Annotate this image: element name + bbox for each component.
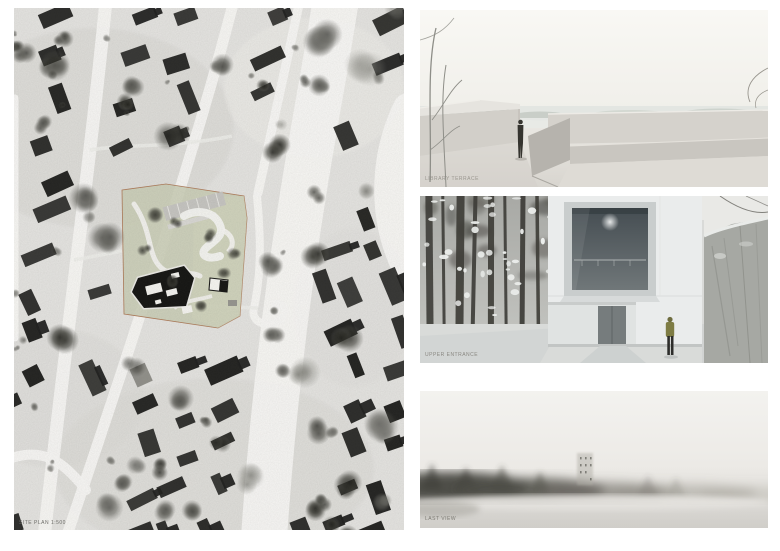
site-plan-panel: SITE PLAN 1:500 — [14, 8, 404, 530]
presentation-board: SITE PLAN 1:500 — [0, 0, 780, 551]
entrance-render-drawing — [420, 196, 768, 363]
entrance-render-label: UPPER ENTRANCE — [425, 353, 478, 358]
yellow-jacket — [666, 322, 674, 337]
window-sill — [560, 296, 660, 302]
fog-render-label: LAST VIEW — [425, 517, 456, 522]
paper-grain-texture — [14, 8, 404, 530]
fog-render-drawing — [420, 391, 768, 528]
terrace-render-panel: LIBRARY TERRACE — [420, 10, 768, 187]
distant-building-silhouette — [577, 453, 593, 485]
interior-light-glow — [601, 213, 619, 231]
fog-render-panel: LAST VIEW — [420, 391, 768, 528]
entrance-render-panel: UPPER ENTRANCE — [420, 196, 768, 363]
site-plan-drawing — [14, 8, 404, 530]
rock-cliff — [703, 218, 768, 363]
terrace-render-label: LIBRARY TERRACE — [425, 177, 479, 182]
site-plan-label: SITE PLAN 1:500 — [19, 521, 66, 526]
building-facade — [548, 196, 702, 347]
terrace-render-drawing — [420, 10, 768, 187]
